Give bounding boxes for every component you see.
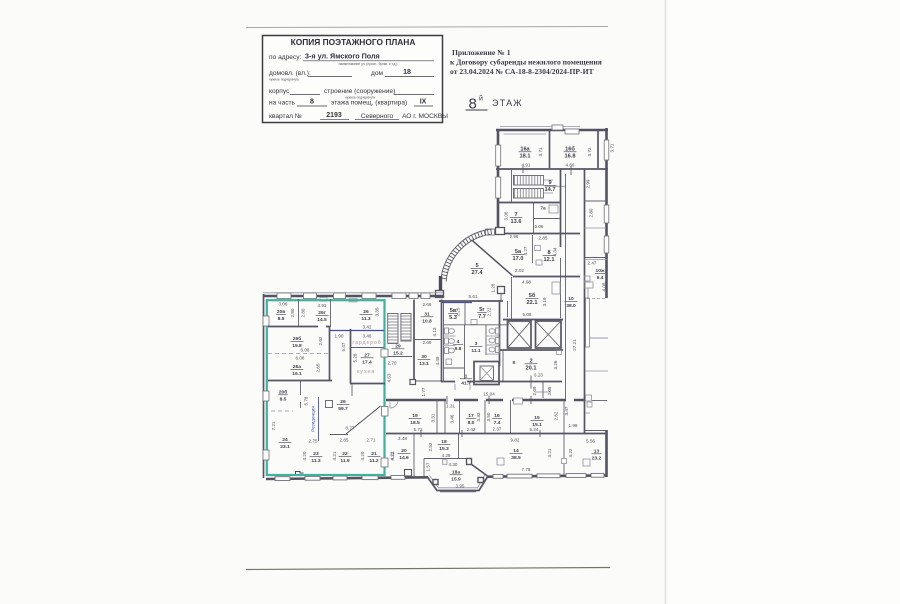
svg-text:этажа помещ. (квартира): этажа помещ. (квартира)	[331, 100, 407, 107]
svg-text:нужное подчеркнуть: нужное подчеркнуть	[269, 78, 299, 82]
svg-text:41.7: 41.7	[461, 381, 471, 387]
svg-text:к Договору субаренды нежилого: к Договору субаренды нежилого помещения	[450, 58, 602, 67]
svg-text:3.71: 3.71	[610, 143, 615, 152]
svg-text:2.47: 2.47	[588, 261, 597, 266]
svg-text:домовл. (вл.):: домовл. (вл.):	[269, 70, 311, 77]
svg-text:3-я ул. Ямского Поля: 3-я ул. Ямского Поля	[305, 52, 380, 61]
svg-text:3.46: 3.46	[450, 414, 455, 423]
svg-text:IX: IX	[420, 99, 427, 106]
svg-text:2.65: 2.65	[316, 363, 321, 372]
svg-text:12.1: 12.1	[544, 257, 555, 263]
svg-text:дом: дом	[371, 70, 384, 77]
svg-text:5.72: 5.72	[414, 427, 423, 432]
svg-text:квартал №: квартал №	[269, 113, 302, 120]
svg-text:11.9: 11.9	[340, 458, 350, 464]
svg-text:2.66: 2.66	[423, 302, 432, 307]
svg-text:4.08: 4.08	[602, 282, 607, 291]
svg-text:Резиденция: Резиденция	[311, 406, 316, 432]
svg-text:1.99: 1.99	[569, 423, 578, 428]
svg-text:4.29: 4.29	[442, 453, 451, 458]
svg-text:15.3: 15.3	[439, 446, 449, 452]
svg-text:20.1: 20.1	[526, 366, 537, 372]
svg-text:3.06: 3.06	[504, 211, 509, 220]
svg-text:27.4: 27.4	[472, 270, 484, 276]
svg-text:18.1: 18.1	[520, 154, 531, 160]
svg-text:4.66: 4.66	[566, 163, 575, 168]
svg-text:15.9: 15.9	[451, 477, 461, 483]
svg-text:2.37: 2.37	[493, 427, 502, 432]
svg-text:5.78: 5.78	[304, 396, 309, 405]
svg-text:4.20: 4.20	[302, 451, 307, 460]
svg-text:на часть: на часть	[269, 100, 296, 107]
svg-text:1.90: 1.90	[335, 334, 344, 339]
svg-text:1.31: 1.31	[446, 404, 455, 409]
svg-text:13.6: 13.6	[511, 219, 522, 225]
svg-text:АО г. МОСКВЫ: АО г. МОСКВЫ	[402, 113, 448, 120]
svg-text:3.50: 3.50	[486, 412, 491, 421]
svg-text:8.5: 8.5	[280, 397, 287, 403]
svg-text:22.1: 22.1	[527, 300, 538, 306]
svg-text:11.3: 11.3	[311, 458, 321, 464]
svg-text:5.24: 5.24	[530, 427, 539, 432]
svg-text:от 23.04.2024 № СА-18-8-2304/2: от 23.04.2024 № СА-18-8-2304/2024-ПР-ИТ	[450, 67, 594, 76]
svg-text:3.31: 3.31	[431, 413, 436, 422]
svg-text:14.5: 14.5	[317, 317, 327, 323]
svg-text:8.5: 8.5	[278, 316, 285, 322]
svg-text:23.1: 23.1	[280, 444, 290, 450]
svg-text:4.22: 4.22	[390, 451, 395, 460]
svg-text:11.1: 11.1	[471, 348, 481, 354]
svg-text:6.06: 6.06	[535, 224, 544, 229]
svg-text:6.23: 6.23	[534, 373, 543, 378]
svg-text:3.46: 3.46	[363, 334, 372, 339]
svg-text:2.80: 2.80	[290, 308, 295, 317]
svg-text:5.08: 5.08	[523, 312, 532, 317]
svg-text:по адресу:: по адресу:	[269, 54, 302, 61]
svg-text:2.62: 2.62	[553, 411, 558, 420]
svg-text:6.08: 6.08	[301, 348, 310, 353]
svg-text:4.20: 4.20	[360, 451, 365, 460]
svg-text:наименование ул. (просп., буль: наименование ул. (просп., бульв. и т.д.)	[339, 62, 398, 66]
svg-text:6.08: 6.08	[296, 356, 305, 361]
svg-text:7.7: 7.7	[478, 314, 486, 320]
svg-text:26б: 26б	[293, 335, 301, 342]
svg-text:2.85: 2.85	[340, 438, 349, 443]
svg-text:18.5: 18.5	[410, 420, 420, 426]
svg-text:20б: 20б	[279, 389, 287, 396]
svg-text:38.0: 38.0	[566, 303, 576, 309]
svg-text:5б: 5б	[529, 292, 536, 299]
svg-text:3.72: 3.72	[587, 147, 592, 156]
svg-text:5.28: 5.28	[353, 353, 358, 362]
svg-text:59.7: 59.7	[338, 406, 348, 412]
svg-text:8.0: 8.0	[468, 420, 475, 426]
svg-text:2.02: 2.02	[515, 268, 524, 273]
svg-text:2.70: 2.70	[388, 361, 397, 366]
svg-text:13.1: 13.1	[419, 361, 429, 367]
svg-text:16.1: 16.1	[292, 371, 302, 377]
svg-text:4.34: 4.34	[553, 247, 558, 256]
svg-text:2.69: 2.69	[423, 340, 432, 345]
svg-text:5.61: 5.61	[469, 294, 478, 299]
svg-text:18: 18	[403, 69, 411, 76]
svg-text:11.3: 11.3	[361, 316, 371, 322]
svg-text:1.57: 1.57	[426, 462, 431, 471]
svg-text:2.80: 2.80	[301, 308, 306, 317]
svg-text:2.08: 2.08	[547, 386, 552, 395]
svg-text:11.2: 11.2	[369, 458, 379, 464]
svg-text:15.04: 15.04	[483, 392, 495, 397]
svg-text:й: й	[479, 95, 483, 103]
svg-text:3.33: 3.33	[476, 412, 481, 421]
svg-text:23.2: 23.2	[592, 456, 602, 462]
svg-text:4.13: 4.13	[432, 327, 437, 336]
svg-text:3.35: 3.35	[375, 307, 380, 316]
svg-text:2.22: 2.22	[487, 307, 492, 316]
svg-text:8.77: 8.77	[346, 426, 355, 431]
svg-text:К: К	[513, 360, 516, 366]
svg-text:1.77: 1.77	[421, 387, 426, 396]
svg-text:1.28: 1.28	[491, 283, 496, 292]
svg-text:7.21: 7.21	[271, 421, 276, 430]
svg-text:2193: 2193	[326, 112, 342, 119]
svg-text:4.30: 4.30	[449, 462, 458, 467]
svg-text:3.19: 3.19	[542, 297, 547, 306]
svg-text:Северного: Северного	[361, 113, 394, 120]
svg-text:17.4: 17.4	[362, 360, 372, 366]
svg-text:38.5: 38.5	[511, 455, 521, 461]
svg-text:2.25: 2.25	[456, 307, 461, 316]
svg-text:10.8: 10.8	[422, 319, 432, 325]
svg-text:4.98: 4.98	[522, 280, 531, 285]
svg-text:3.26: 3.26	[553, 360, 558, 369]
svg-text:2.62: 2.62	[318, 336, 323, 345]
svg-text:ЭТАЖ: ЭТАЖ	[492, 98, 523, 108]
svg-text:3.71: 3.71	[538, 147, 543, 156]
svg-text:гардероб: гардероб	[352, 339, 381, 346]
svg-text:3.42: 3.42	[363, 325, 372, 330]
svg-text:9.4: 9.4	[597, 275, 604, 281]
svg-text:7.78: 7.78	[522, 467, 531, 472]
svg-text:17.0: 17.0	[513, 256, 524, 262]
svg-text:9.82: 9.82	[511, 438, 520, 443]
svg-text:строение (сооружение): строение (сооружение)	[324, 88, 395, 95]
svg-text:2.09: 2.09	[532, 386, 537, 395]
svg-text:2.85: 2.85	[539, 235, 548, 240]
svg-text:2.96: 2.96	[510, 234, 519, 239]
svg-text:9.8: 9.8	[455, 346, 462, 352]
svg-text:2.75: 2.75	[309, 439, 318, 444]
svg-text:2.52: 2.52	[428, 442, 433, 451]
svg-text:5.56: 5.56	[586, 439, 595, 444]
svg-text:27.21: 27.21	[572, 339, 577, 351]
svg-text:4.91: 4.91	[318, 303, 327, 308]
svg-text:4.21: 4.21	[547, 448, 552, 457]
svg-text:2.42: 2.42	[467, 427, 476, 432]
svg-text:4.49: 4.49	[435, 356, 440, 365]
svg-text:корпус: корпус	[269, 88, 290, 95]
svg-text:7.4: 7.4	[494, 420, 501, 426]
svg-text:3.48: 3.48	[398, 436, 407, 441]
svg-text:4.27: 4.27	[523, 246, 528, 255]
svg-text:4.21: 4.21	[332, 451, 337, 460]
svg-text:4.22: 4.22	[568, 448, 573, 457]
svg-text:16.8: 16.8	[565, 154, 576, 160]
svg-text:3.06: 3.06	[279, 302, 288, 307]
svg-text:14.6: 14.6	[399, 455, 409, 461]
svg-text:3.47: 3.47	[564, 406, 569, 415]
svg-text:5.47: 5.47	[341, 342, 346, 351]
svg-text:2.99: 2.99	[586, 179, 591, 188]
svg-text:15.2: 15.2	[393, 351, 403, 357]
svg-text:2.80: 2.80	[589, 208, 594, 217]
svg-text:8: 8	[310, 99, 314, 106]
svg-text:7а: 7а	[540, 206, 546, 212]
svg-text:Приложение № 1: Приложение № 1	[452, 48, 511, 57]
svg-text:2.71: 2.71	[367, 438, 376, 443]
svg-text:4.53: 4.53	[387, 373, 392, 382]
svg-text:16б: 16б	[565, 146, 575, 153]
svg-text:КОПИЯ ПОЭТАЖНОГО ПЛАНА: КОПИЯ ПОЭТАЖНОГО ПЛАНА	[291, 37, 416, 47]
svg-text:кухня: кухня	[357, 369, 375, 375]
svg-text:14.7: 14.7	[545, 187, 556, 193]
